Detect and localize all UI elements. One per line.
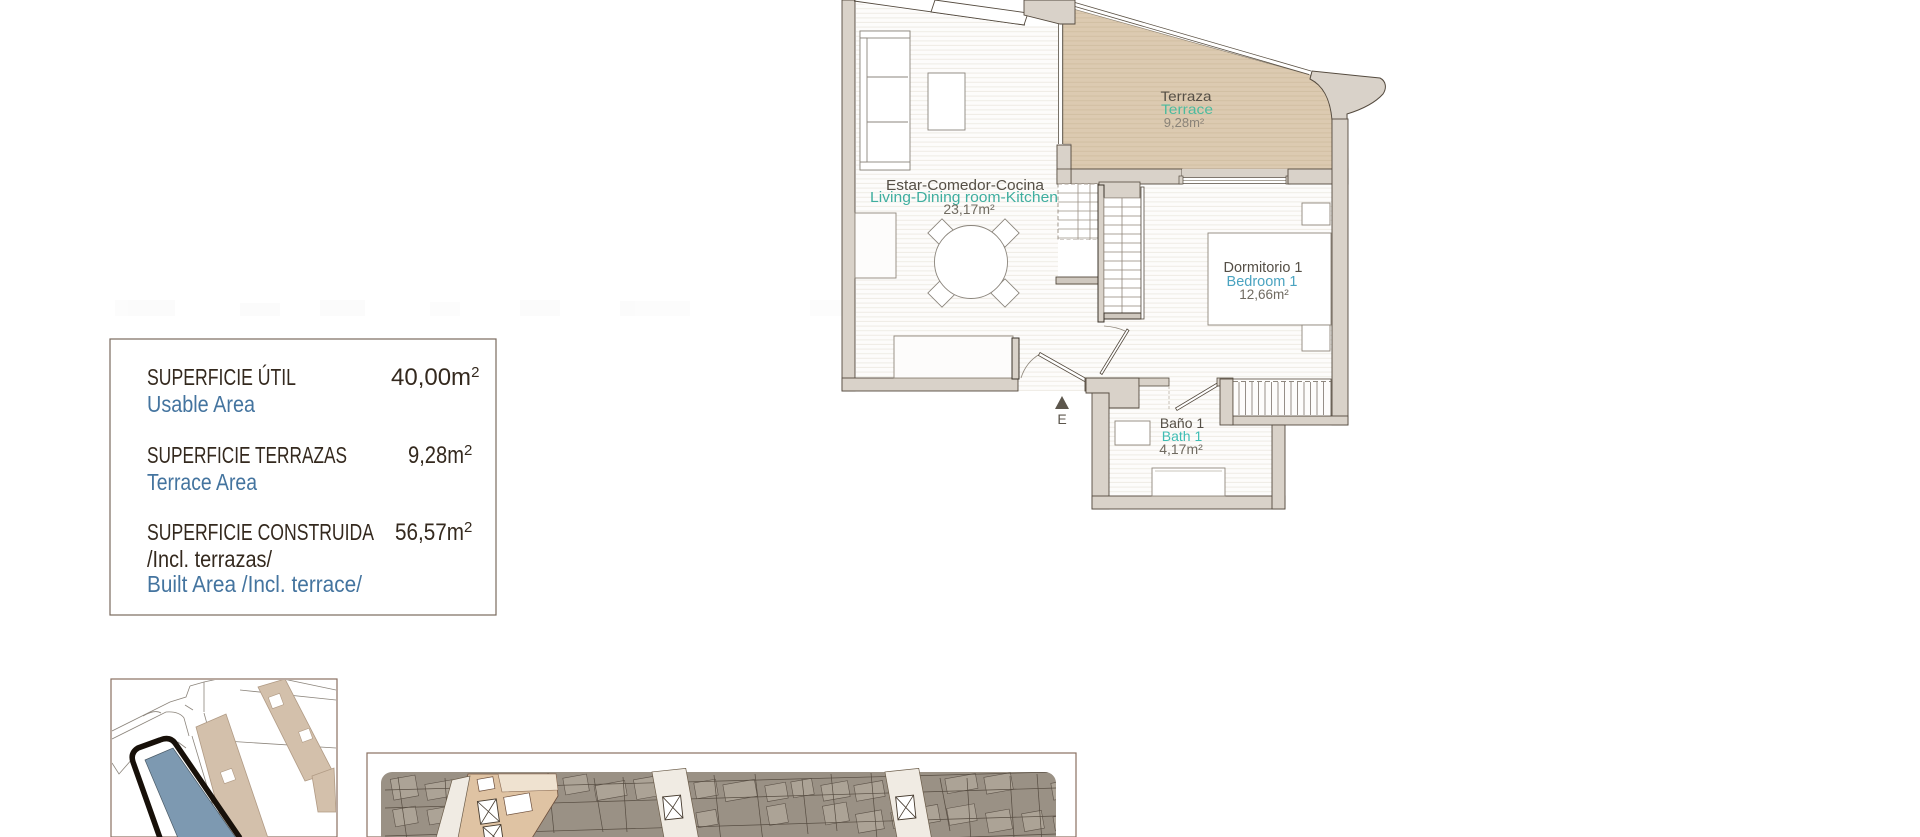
svg-text:12,66m²: 12,66m² xyxy=(1239,287,1289,302)
svg-text:40,00m2: 40,00m2 xyxy=(391,364,479,391)
svg-text:9,28m²: 9,28m² xyxy=(1164,115,1205,130)
svg-text:Terrace Area: Terrace Area xyxy=(147,469,257,495)
svg-text:E: E xyxy=(1057,411,1066,427)
svg-text:23,17m²: 23,17m² xyxy=(943,201,995,217)
svg-text:Usable Area: Usable Area xyxy=(147,391,255,417)
svg-text:SUPERFICIE CONSTRUIDA: SUPERFICIE CONSTRUIDA xyxy=(147,519,374,545)
svg-text:SUPERFICIE ÚTIL: SUPERFICIE ÚTIL xyxy=(147,364,296,390)
svg-text:9,28m2: 9,28m2 xyxy=(408,442,472,469)
svg-text:SUPERFICIE TERRAZAS: SUPERFICIE TERRAZAS xyxy=(147,442,347,468)
svg-text:/Incl. terrazas/: /Incl. terrazas/ xyxy=(147,546,273,572)
svg-text:Built Area /Incl. terrace/: Built Area /Incl. terrace/ xyxy=(147,571,363,597)
svg-text:4,17m²: 4,17m² xyxy=(1159,441,1203,457)
svg-text:56,57m2: 56,57m2 xyxy=(395,519,472,546)
